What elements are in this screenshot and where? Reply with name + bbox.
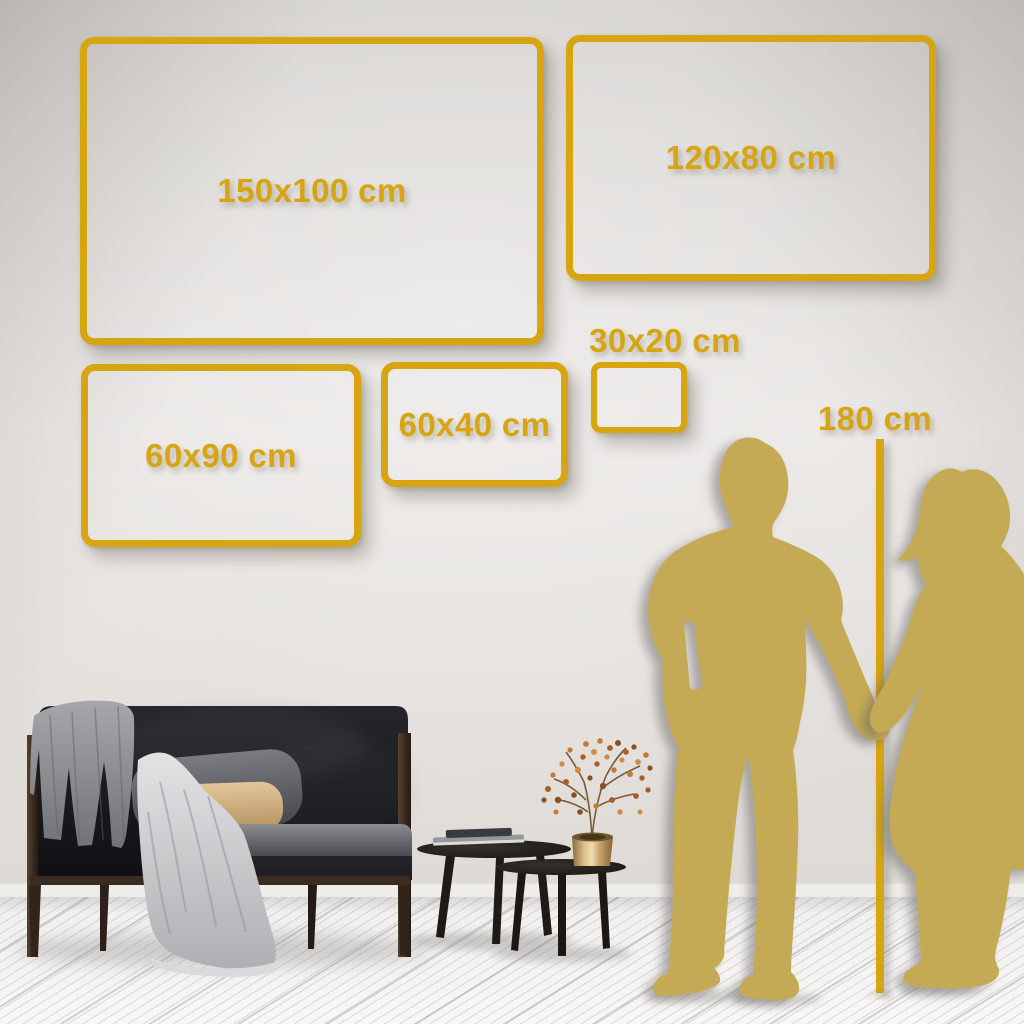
woman-silhouette: [870, 468, 1024, 988]
couple-silhouettes: [0, 0, 1024, 1024]
man-silhouette: [648, 437, 890, 1000]
size-guide-image: 150x100 cm 120x80 cm 60x90 cm 60x40 cm 3…: [0, 0, 1024, 1024]
